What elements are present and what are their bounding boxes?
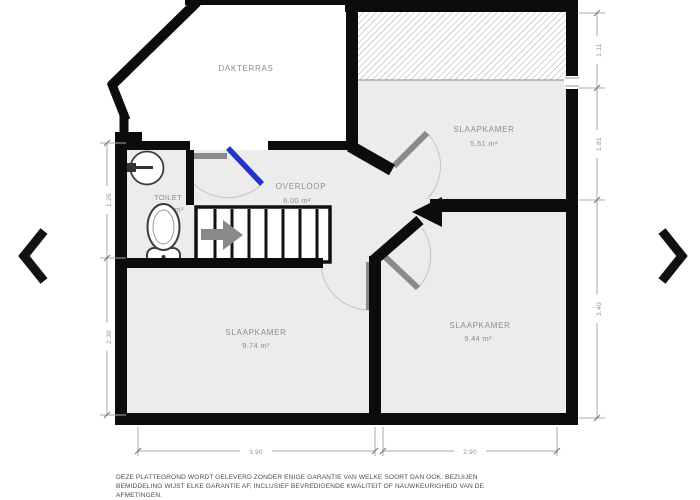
floorplan-viewer: DAKTERRAS SLAAPKAMER 5.51 m² TOILET 1.37… xyxy=(0,0,700,500)
dim-left-top: 1.26 xyxy=(106,193,113,207)
dim-right-top: 1.11 xyxy=(596,43,603,56)
dim-right-bottom: 3.40 xyxy=(596,302,603,316)
dim-bottom-left: 3.90 xyxy=(249,449,263,456)
prev-image-button[interactable] xyxy=(12,224,58,288)
sloped-ceiling-hatch xyxy=(358,12,566,80)
stairs-icon xyxy=(196,207,330,262)
room-label-slaapkamer-3: SLAAPKAMER xyxy=(449,321,510,330)
chevron-right-icon xyxy=(648,224,694,288)
toilet-icon xyxy=(147,204,180,266)
room-label-slaapkamer-2: SLAAPKAMER xyxy=(225,328,286,337)
room-area-slaapkamer-3: 9.44 m² xyxy=(464,334,492,343)
window-right-wall xyxy=(564,76,580,89)
dim-right-mid: 1.81 xyxy=(596,137,603,151)
disclaimer-text: DEZE PLATTEGROND WORDT GELEVERD ZONDER E… xyxy=(116,473,556,500)
room-area-slaapkamer-2: 9.74 m² xyxy=(242,341,270,350)
room-label-overloop: OVERLOOP xyxy=(276,182,327,191)
disclaimer-line-3: AFMETINGEN. xyxy=(116,491,556,500)
room-label-slaapkamer-1: SLAAPKAMER xyxy=(453,125,514,134)
room-label-toilet: TOILET xyxy=(154,193,182,202)
next-image-button[interactable] xyxy=(648,224,694,288)
chevron-left-icon xyxy=(12,224,58,288)
disclaimer-line-1: DEZE PLATTEGROND WORDT GELEVERD ZONDER E… xyxy=(116,473,556,482)
room-area-overloop: 6.00 m² xyxy=(283,196,311,205)
room-label-dakterras: DAKTERRAS xyxy=(218,64,273,73)
dim-left-bottom: 2.30 xyxy=(106,330,113,344)
dim-bottom-right: 2.90 xyxy=(463,449,477,456)
disclaimer-line-2: BEMIDDELING WIJST ELKE GARANTIE AF, INCL… xyxy=(116,482,556,491)
room-area-slaapkamer-1: 5.51 m² xyxy=(470,139,498,148)
floor-plan: DAKTERRAS SLAAPKAMER 5.51 m² TOILET 1.37… xyxy=(0,0,700,500)
